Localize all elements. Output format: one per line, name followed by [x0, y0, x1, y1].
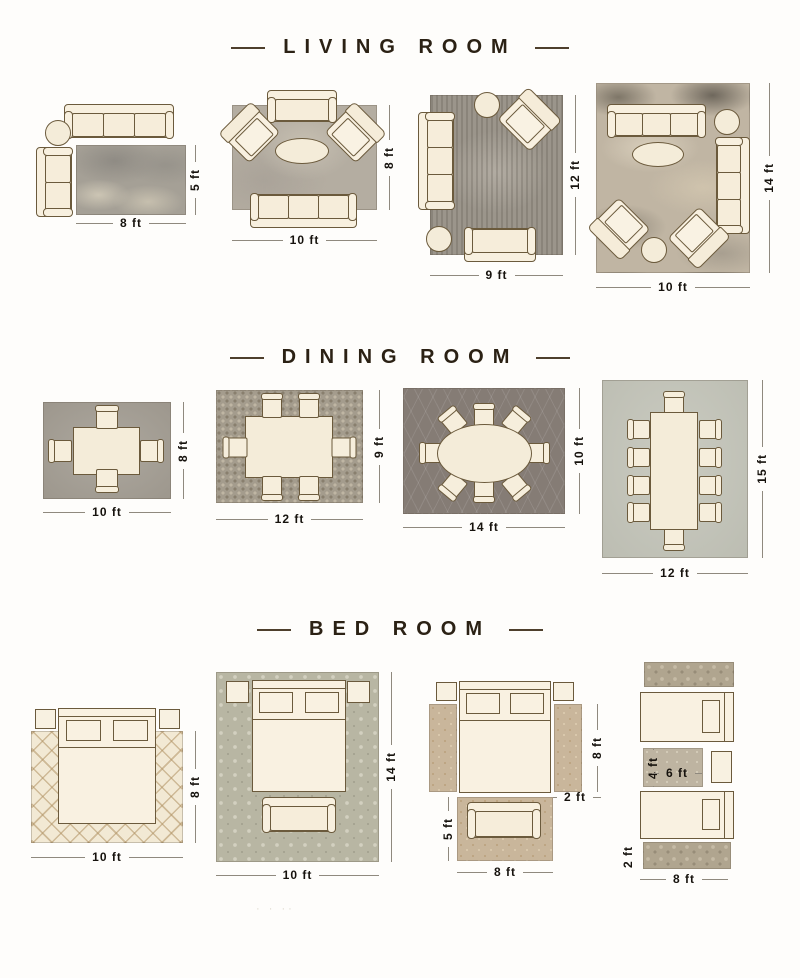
width-dimension: 8 ft [640, 872, 728, 886]
pillow [510, 693, 543, 714]
dining-chair [699, 503, 718, 522]
pillow [466, 693, 499, 714]
width-dimension: 9 ft [430, 268, 563, 282]
nightstand [35, 709, 56, 729]
bench [467, 802, 541, 838]
round-side-table [714, 109, 740, 135]
round-side-table [426, 226, 452, 252]
twin-bed [640, 791, 734, 839]
headboard [253, 681, 345, 689]
bed [58, 708, 156, 824]
nightstand [226, 681, 249, 703]
height-dimension: 15 ft [755, 380, 769, 558]
dining-chair [262, 476, 282, 497]
dining-chair [699, 448, 718, 467]
round-side-table [474, 92, 500, 118]
height-dimension: 8 ft [188, 731, 202, 843]
nightstand [159, 709, 180, 729]
sofa [716, 137, 750, 234]
sofa [250, 194, 357, 228]
round-side-table [641, 237, 667, 263]
width-dimension: 10 ft [31, 850, 183, 864]
dining-chair [227, 438, 248, 458]
height-dimension: 14 ft [762, 83, 776, 273]
width-dimension: 14 ft [403, 520, 565, 534]
width-dimension: 8 ft [76, 216, 186, 230]
chaise [36, 147, 72, 217]
headboard [59, 709, 155, 717]
width-dimension: 10 ft [596, 280, 750, 294]
pillow [305, 692, 339, 713]
foot-rug-width-dimension: 8 ft [457, 865, 553, 879]
width-dimension: 10 ft [232, 233, 377, 247]
sofa [64, 104, 174, 138]
bed [459, 681, 551, 793]
oval-coffee-table [275, 138, 329, 164]
sofa [607, 104, 706, 137]
loveseat [267, 90, 337, 122]
dining-chair [262, 397, 282, 418]
runner-width-dimension: 2 ft [549, 790, 601, 804]
header-rule [536, 357, 570, 359]
dining-chair [699, 420, 718, 439]
nightstand [553, 682, 574, 701]
dining-chair [140, 440, 160, 462]
height-dimension: 9 ft [372, 390, 386, 503]
dining-chair [664, 527, 684, 547]
rug-size-guide: LIVING ROOM 8 ft 5 ft 10 ft 8 ft [0, 0, 800, 978]
dining-chair [299, 397, 319, 418]
header-rule [231, 47, 265, 49]
runner-height-dimension: 2 ft [621, 839, 635, 871]
sofa [418, 112, 454, 210]
dining-table [245, 416, 333, 478]
nightstand [347, 681, 370, 703]
bench [262, 797, 336, 832]
pillow [113, 720, 149, 741]
foot-rug-height-dimension: 5 ft [441, 797, 455, 861]
height-dimension: 14 ft [384, 672, 398, 862]
sofa-arm [165, 111, 174, 139]
height-dimension: 8 ft [382, 105, 396, 210]
loveseat [464, 228, 536, 262]
bed [252, 680, 346, 792]
dining-table [73, 427, 140, 475]
dining-chair [96, 409, 118, 429]
section-title: BED ROOM [309, 618, 491, 641]
height-dimension: 12 ft [568, 95, 582, 255]
runner-rug [554, 704, 582, 792]
header-rule [509, 629, 543, 631]
headboard [460, 682, 550, 690]
width-dimension: 12 ft [216, 512, 363, 526]
oval-dining-table [437, 424, 532, 483]
twin-bed [640, 692, 734, 742]
header-rule [230, 357, 264, 359]
dining-chair [631, 476, 650, 495]
dining-chair [699, 476, 718, 495]
runner-rug [429, 704, 457, 792]
section-title: LIVING ROOM [283, 36, 516, 59]
runner-rug [644, 662, 734, 687]
watermark: · · ·· [256, 903, 295, 915]
width-dimension: 10 ft [43, 505, 171, 519]
header-rule [257, 629, 291, 631]
dining-chair [332, 438, 353, 458]
section-header-bed-room: BED ROOM [0, 618, 800, 641]
dining-chair [631, 448, 650, 467]
rug-8x5 [76, 145, 186, 215]
nightstand [711, 751, 732, 783]
width-dimension: 12 ft [602, 566, 748, 580]
dining-chair [631, 420, 650, 439]
pillow [66, 720, 102, 741]
section-title: DINING ROOM [282, 346, 519, 369]
section-header-dining-room: DINING ROOM [0, 346, 800, 369]
dining-chair [299, 476, 319, 497]
dining-chair [96, 469, 118, 489]
pillow [702, 700, 720, 733]
dining-chair [631, 503, 650, 522]
width-dimension: 10 ft [216, 868, 379, 882]
round-side-table [45, 120, 71, 146]
header-rule [535, 47, 569, 49]
oval-coffee-table [632, 142, 684, 167]
nightstand [436, 682, 457, 701]
pillow [702, 799, 720, 830]
runner-length-dimension: 8 ft [590, 704, 604, 792]
dining-table [650, 412, 698, 530]
height-dimension: 10 ft [572, 388, 586, 514]
mid-rug-width-dimension: 6 ft [652, 766, 702, 780]
headboard [724, 792, 733, 838]
height-dimension: 8 ft [176, 402, 190, 499]
headboard [724, 693, 733, 741]
dining-chair [52, 440, 72, 462]
runner-rug [643, 842, 731, 869]
height-dimension: 5 ft [188, 145, 202, 215]
pillow [259, 692, 293, 713]
section-header-living-room: LIVING ROOM [0, 36, 800, 59]
